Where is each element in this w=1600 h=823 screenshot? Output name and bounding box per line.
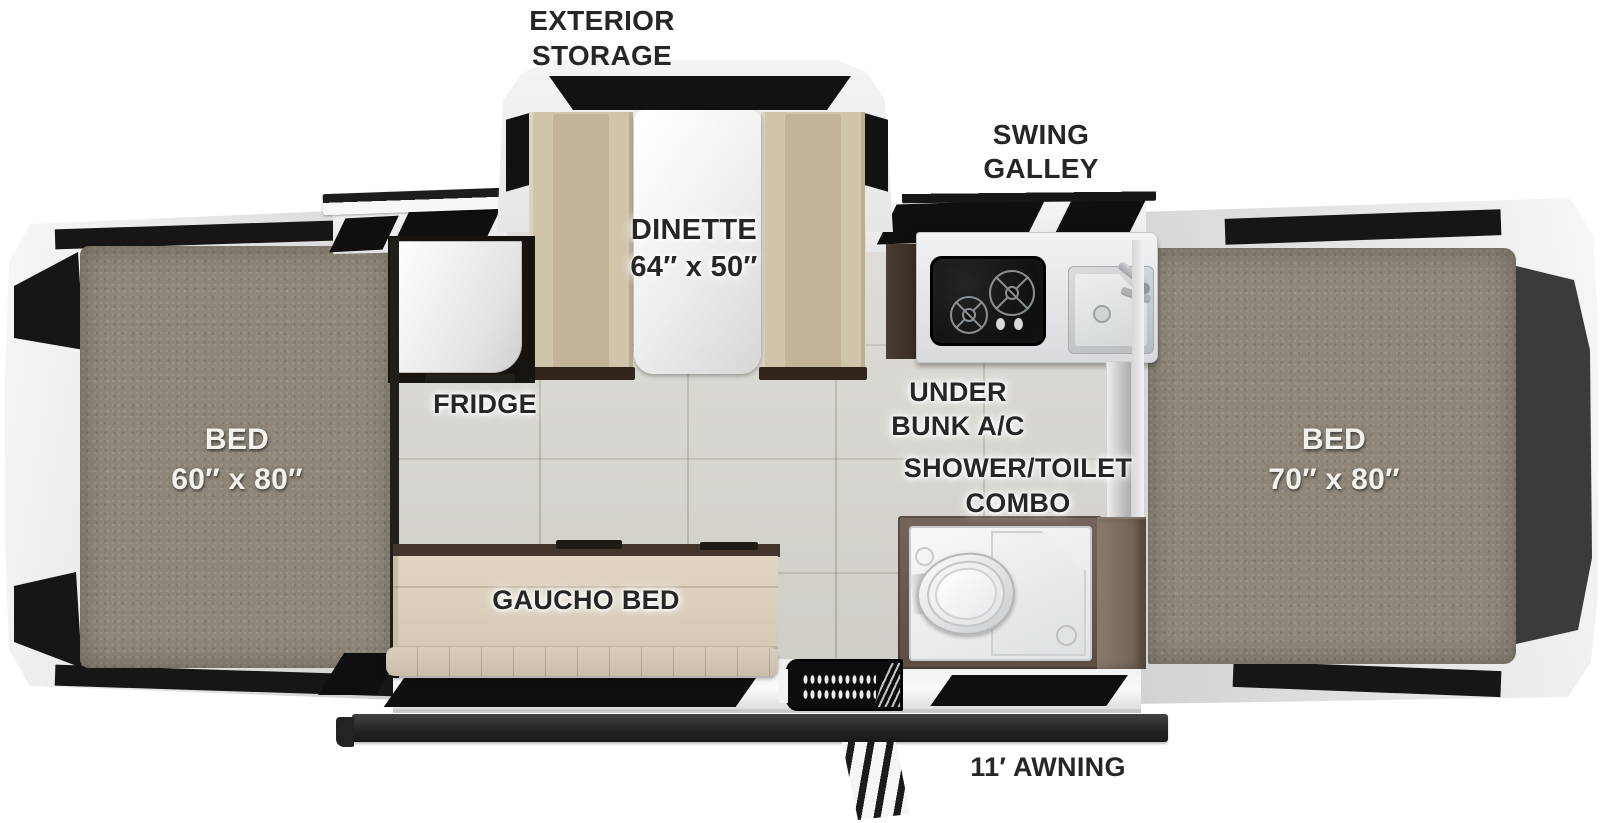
cooktop-knob-icon [996, 318, 1005, 330]
dinette-bench-right [761, 112, 865, 375]
floorplan-canvas: EXTERIOR STORAGE SWING GALLEY DINETTE 64… [0, 0, 1600, 823]
label-line: BUNK A/C [891, 409, 1024, 443]
under-bunk-ac-label: UNDER BUNK A/C [891, 375, 1024, 443]
label-line: BED [1268, 420, 1400, 460]
awning-rail [352, 714, 1168, 742]
dinette-bench-cushion [785, 114, 841, 371]
sink-drain-icon [1093, 305, 1111, 323]
dinette-bench-cushion [553, 114, 609, 371]
burner-hub-icon [962, 308, 976, 322]
swing-galley-label: SWING GALLEY [983, 118, 1098, 186]
gaucho-bed-label: GAUCHO BED [492, 585, 680, 616]
bed-size-label: 60″ x 80″ [171, 460, 303, 500]
shower-toilet-combo-label: SHOWER/TOILET COMBO [904, 451, 1132, 521]
front-bed-label: BED 60″ x 80″ [171, 420, 303, 500]
step-bracket [779, 669, 788, 703]
bed-size-label: 70″ x 80″ [1268, 460, 1400, 500]
label-line: SWING [983, 118, 1098, 152]
gaucho-hinge [700, 542, 758, 550]
window-opening [862, 112, 888, 191]
exterior-storage-label: EXTERIOR STORAGE [529, 3, 675, 73]
label-line: STORAGE [529, 38, 675, 73]
dinette-slideout-roof [545, 74, 855, 112]
cooktop-burner-icon [950, 296, 988, 334]
window-opening [930, 675, 1128, 706]
label-line: SHOWER/TOILET [904, 451, 1132, 486]
shower-drain-icon [1056, 625, 1077, 646]
swing-galley-rail [902, 185, 1156, 204]
label-line: EXTERIOR [529, 3, 675, 38]
fridge [394, 241, 522, 373]
burner-hub-icon [1005, 286, 1019, 300]
step-tread-stripes [874, 663, 900, 707]
wardrobe-cabinet [1097, 517, 1146, 669]
step-tread-dots [802, 670, 876, 700]
dinette-size-label: 64″ x 50″ [630, 249, 757, 286]
fridge-vent [425, 374, 515, 382]
cooktop-knob-icon [1014, 318, 1023, 330]
rear-bed-label: BED 70″ x 80″ [1268, 420, 1400, 500]
label-line: UNDER [891, 375, 1024, 409]
awning-label: 11′ AWNING [970, 752, 1126, 783]
label-line: DINETTE [630, 212, 757, 249]
label-line: GALLEY [983, 152, 1098, 186]
dinette-bench-left [529, 112, 633, 375]
galley-cabinet [886, 244, 919, 359]
label-line: COMBO [904, 486, 1132, 521]
cooktop-burner-icon [989, 270, 1035, 316]
dinette-bench-base [527, 367, 635, 380]
dinette-bench-base [759, 367, 867, 380]
toilet-lid [924, 558, 1007, 631]
toilet-lid-ring [933, 565, 999, 622]
fridge-label: FRIDGE [433, 389, 537, 420]
gaucho-hinge [556, 540, 622, 549]
entry-door-flap [836, 742, 912, 820]
shower-drain-icon [915, 547, 934, 566]
dinette-label: DINETTE 64″ x 50″ [630, 212, 757, 286]
gaucho-bed-bolster [386, 647, 778, 676]
window-opening [384, 678, 756, 707]
door-flap-stripes [836, 742, 912, 820]
entry-step [786, 659, 903, 711]
label-line: BED [171, 420, 303, 460]
awning-rail-bracket [336, 717, 354, 747]
